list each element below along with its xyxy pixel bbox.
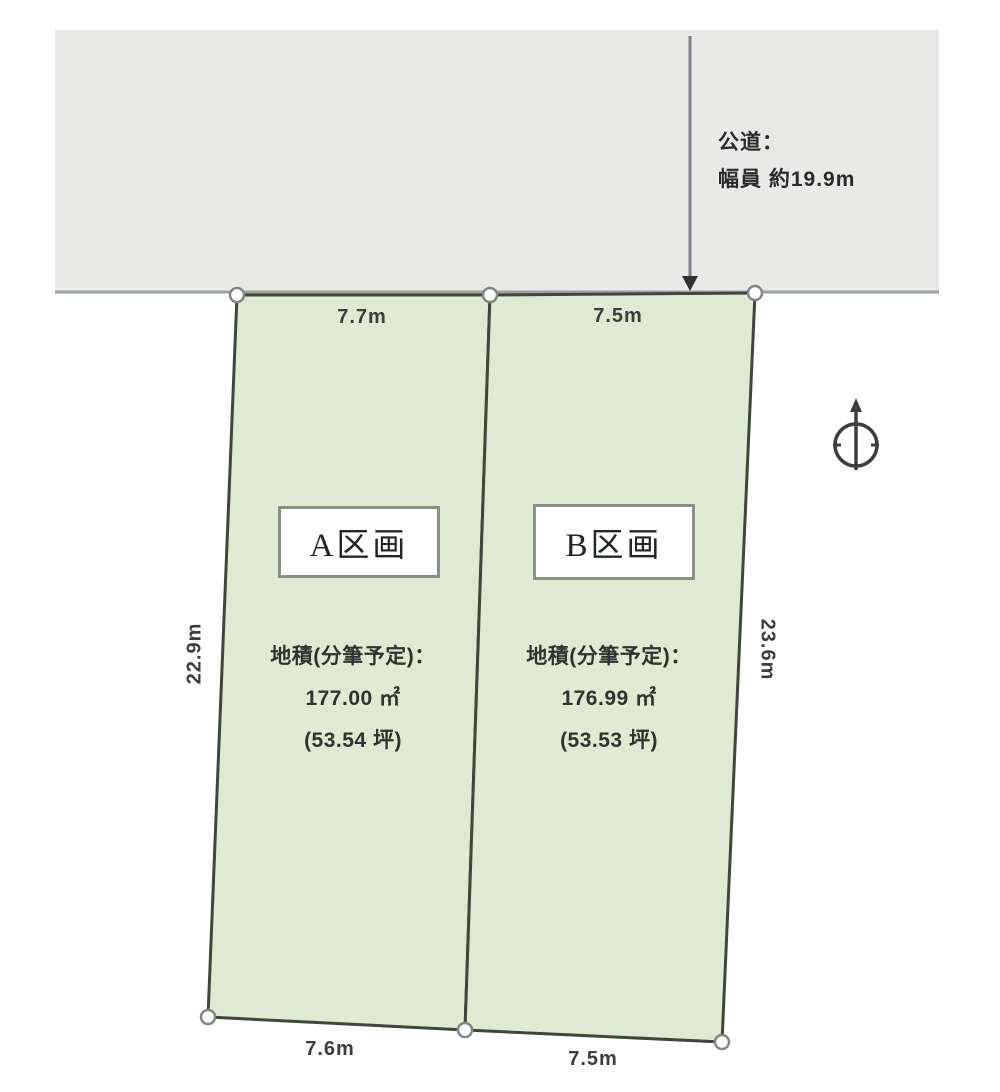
vertex-marker bbox=[483, 288, 497, 302]
vertex-marker bbox=[748, 286, 762, 300]
vertex-marker bbox=[201, 1010, 215, 1024]
plot-a-label: A区画 bbox=[310, 518, 409, 566]
vertex-marker bbox=[230, 288, 244, 302]
dimension-plot-b-bottom: 7.5m bbox=[531, 1048, 655, 1071]
land-plot-diagram: 公道： 幅員 約19.9m 7.7m 7.5m 7.6m 7.5m 22.9m … bbox=[0, 0, 1000, 1092]
plot-b-label-box: B区画 bbox=[533, 504, 695, 580]
vertex-marker bbox=[715, 1035, 729, 1049]
dimension-plot-a-bottom: 7.6m bbox=[268, 1038, 392, 1061]
plot-b-area-text: 地積(分筆予定)： 176.99 ㎡ (53.53 坪) bbox=[489, 636, 729, 762]
plot-b-area-m2: 176.99 ㎡ bbox=[489, 678, 729, 720]
vertex-marker bbox=[458, 1023, 472, 1037]
plot-b-area-title: 地積(分筆予定)： bbox=[489, 636, 729, 678]
road-label-line1: 公道： bbox=[718, 124, 855, 161]
plot-a-area-title: 地積(分筆予定)： bbox=[233, 636, 473, 678]
plot-b-area-tsubo: (53.53 坪) bbox=[489, 720, 729, 762]
plot-a-area-m2: 177.00 ㎡ bbox=[233, 678, 473, 720]
north-compass-icon bbox=[833, 398, 879, 470]
road-label: 公道： 幅員 約19.9m bbox=[718, 124, 855, 198]
dimension-right-side: 23.6m bbox=[756, 588, 779, 712]
down-arrow-icon bbox=[682, 36, 698, 291]
dimension-left-side: 22.9m bbox=[184, 592, 207, 716]
dimension-plot-b-top: 7.5m bbox=[556, 305, 680, 328]
plot-a-area-tsubo: (53.54 坪) bbox=[233, 720, 473, 762]
plot-a-area-text: 地積(分筆予定)： 177.00 ㎡ (53.54 坪) bbox=[233, 636, 473, 762]
plot-b-label: B区画 bbox=[565, 518, 662, 566]
plot-a-label-box: A区画 bbox=[278, 506, 440, 578]
road-label-line2: 幅員 約19.9m bbox=[718, 161, 855, 198]
dimension-plot-a-top: 7.7m bbox=[300, 306, 424, 329]
